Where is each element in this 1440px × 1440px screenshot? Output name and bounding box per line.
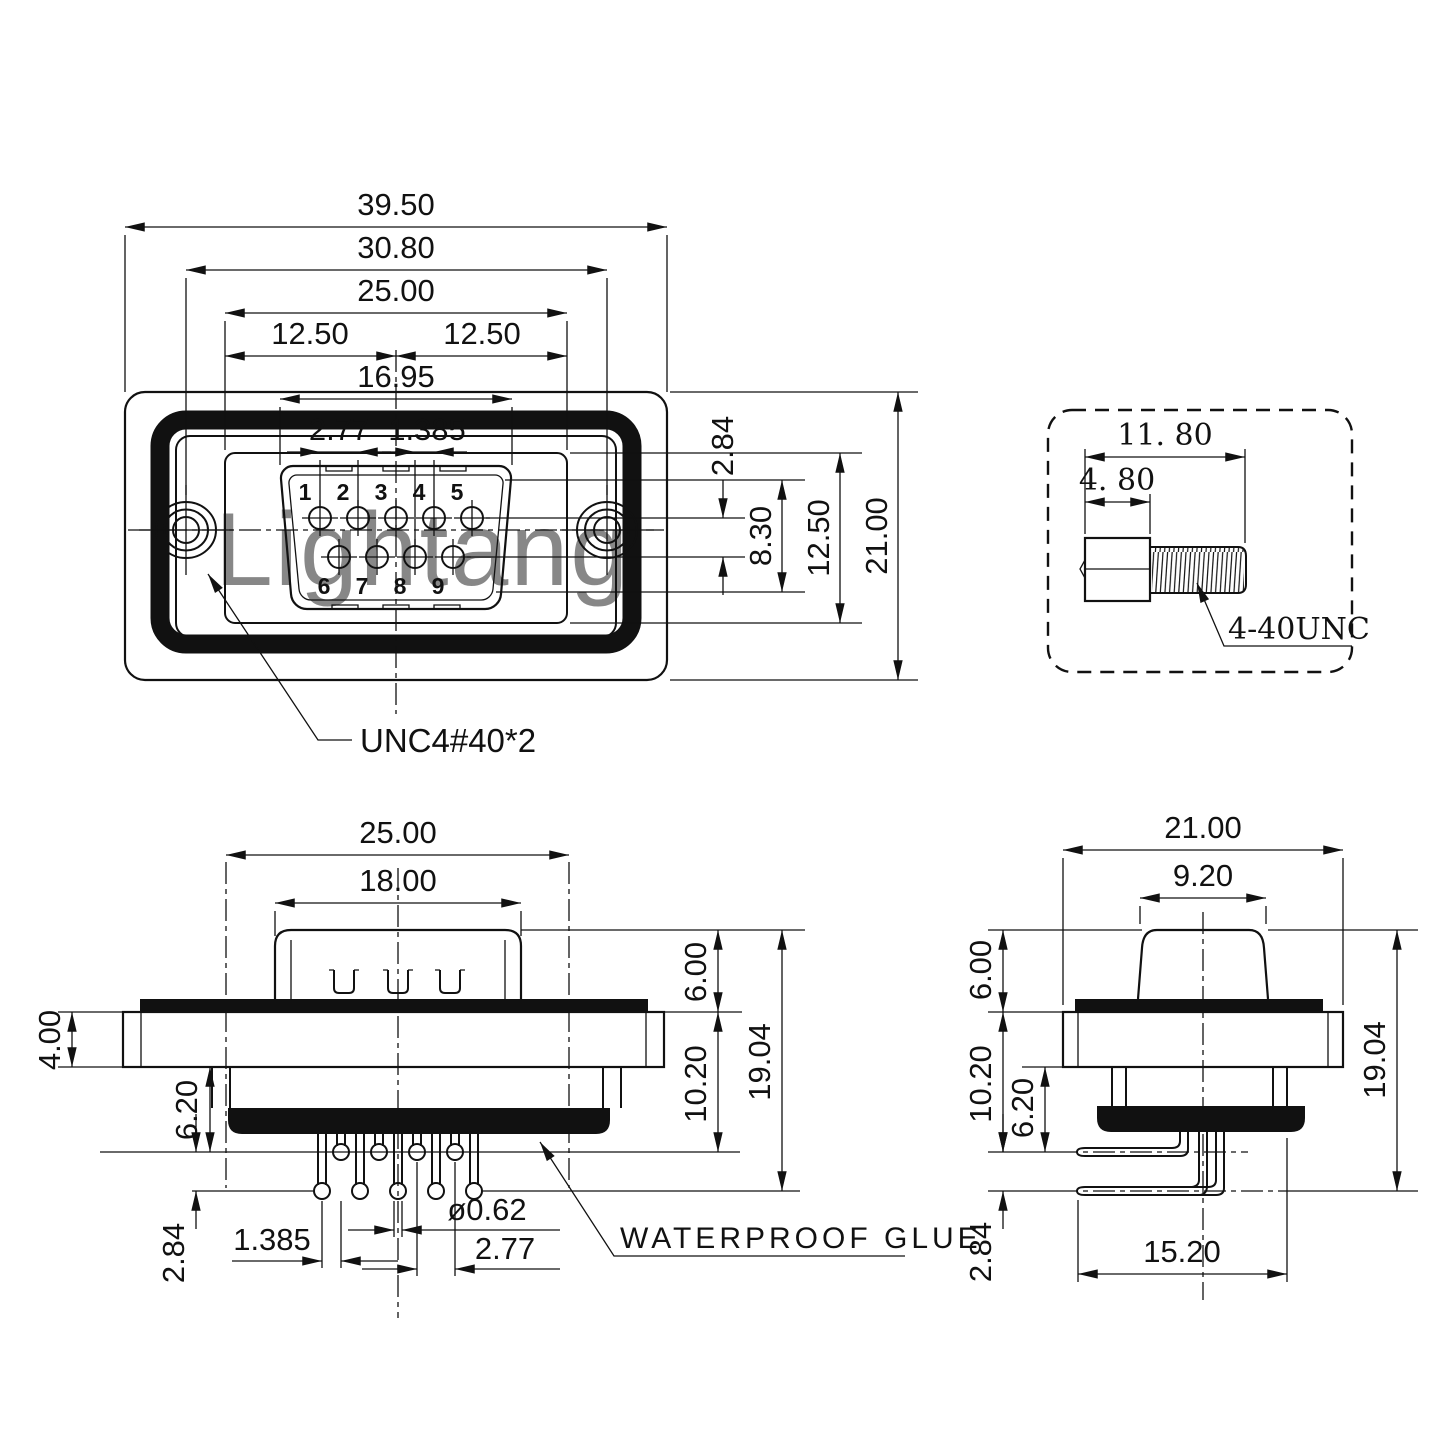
dim-glue-depth: 6.20: [169, 1080, 204, 1140]
dim-hole-spacing: 30.80: [357, 230, 435, 265]
side-left-dimensions: 4.00 6.20 2.84: [32, 1010, 210, 1283]
side-bottom-dimensions: 1.385 ø0.62 2.77: [232, 1162, 560, 1276]
dim-side-pin-pitch: 2.77: [475, 1231, 535, 1266]
dim-side-body-depth: 10.20: [678, 1045, 713, 1123]
waterproof-glue-bar: [228, 1108, 610, 1134]
side-body: [123, 930, 664, 1134]
end-view: 21.00 9.20: [963, 810, 1418, 1300]
pin-number-3: 3: [375, 479, 388, 505]
dim-end-glue-depth: 6.20: [1005, 1078, 1040, 1138]
front-view: 1 2 3 4 5 6 7 8 9 39.50 30.: [125, 187, 918, 759]
waterproof-glue-label: WATERPROOF GLUE: [620, 1222, 982, 1255]
dim-pin-half-pitch: 1.385: [388, 412, 466, 447]
dim-end-total-height: 19.04: [1357, 1021, 1392, 1099]
waterproof-glue-callout: WATERPROOF GLUE: [540, 1142, 982, 1256]
dim-end-body-width: 21.00: [1164, 810, 1242, 845]
dim-overall-width: 39.50: [357, 187, 435, 222]
end-glue-bar: [1097, 1106, 1305, 1132]
dim-side-row-offset: 2.84: [156, 1223, 191, 1283]
thread-note-label: UNC4#40*2: [360, 722, 536, 759]
pin-number-1: 1: [299, 479, 312, 505]
dim-end-shell-height: 6.00: [963, 940, 998, 1000]
dim-side-pin-half-pitch: 1.385: [233, 1222, 311, 1257]
pin-number-9: 9: [432, 573, 445, 599]
screw-head: [1080, 538, 1150, 601]
pin-number-6: 6: [318, 573, 331, 599]
side-pins: [100, 1134, 800, 1199]
dim-side-shell-height: 6.00: [678, 942, 713, 1002]
end-top-dimensions: 21.00 9.20: [1063, 810, 1343, 1005]
pin-number-2: 2: [337, 479, 350, 505]
dim-screw-head-length: 4. 80: [1079, 463, 1155, 498]
dim-shell-width: 16.95: [357, 359, 435, 394]
dim-end-body-depth: 10.20: [963, 1045, 998, 1123]
dim-end-shell-width: 9.20: [1173, 858, 1233, 893]
dim-flange-thickness: 4.00: [32, 1010, 67, 1070]
thread-spec-label: 4-40UNC: [1228, 612, 1370, 647]
end-gasket-bar: [1075, 999, 1323, 1012]
screw-detail-view: 11. 80 4. 80 4-40UNC: [1048, 410, 1370, 672]
dim-half-right: 12.50: [443, 316, 521, 351]
gasket-bar: [140, 999, 648, 1012]
end-bottom-dimensions: 15.20: [1078, 1138, 1287, 1282]
dim-end-pin-span: 15.20: [1143, 1234, 1221, 1269]
dim-pin-diameter: ø0.62: [447, 1192, 526, 1227]
technical-drawing-page: Lightang 1 2 3: [0, 0, 1440, 1440]
dim-body-height: 21.00: [859, 497, 894, 575]
pin-number-5: 5: [451, 479, 464, 505]
flange: [123, 1012, 664, 1067]
side-view: 25.00 18.00: [32, 815, 982, 1318]
dim-shell-height: 8.30: [743, 506, 778, 566]
dim-side-shell-width: 18.00: [359, 863, 437, 898]
connector-drawing: Lightang 1 2 3: [0, 0, 1440, 1440]
screw-dimensions: 11. 80 4. 80: [1079, 418, 1245, 543]
dim-pin-pitch: 2.77: [309, 412, 369, 447]
dim-insert-width: 25.00: [357, 273, 435, 308]
dim-row-offset: 2.84: [705, 416, 740, 476]
dim-side-total-height: 19.04: [742, 1023, 777, 1101]
dim-insert-height: 12.50: [801, 499, 836, 577]
dim-end-row-offset: 2.84: [963, 1222, 998, 1282]
dim-side-insert-width: 25.00: [359, 815, 437, 850]
end-bent-pins: [1056, 1132, 1285, 1195]
dim-screw-total-length: 11. 80: [1117, 418, 1212, 453]
dim-half-left: 12.50: [271, 316, 349, 351]
pin-number-7: 7: [356, 573, 369, 599]
